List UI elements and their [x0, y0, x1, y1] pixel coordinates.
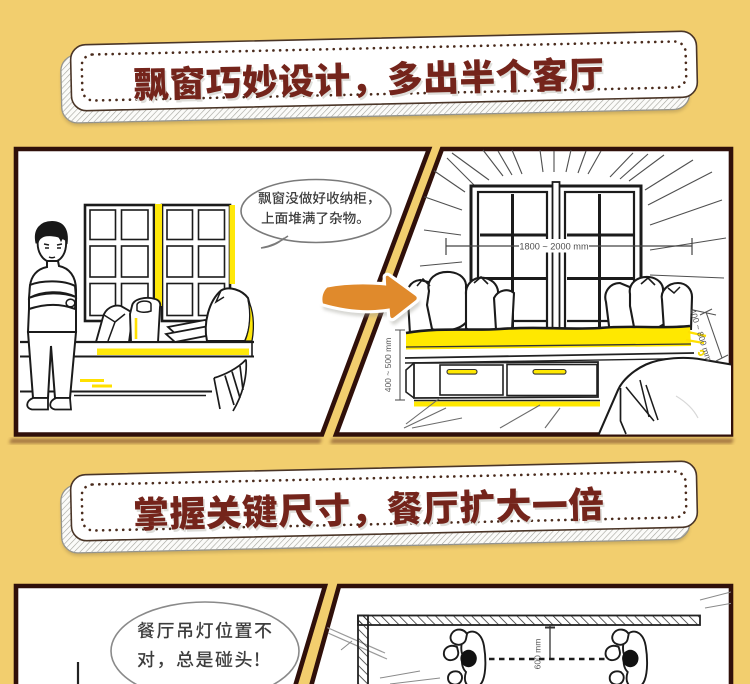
svg-text:400 ~ 500 mm: 400 ~ 500 mm [383, 338, 393, 393]
svg-text:1800 ~ 2000 mm: 1800 ~ 2000 mm [519, 241, 589, 251]
svg-text:600 mm: 600 mm [533, 639, 543, 670]
